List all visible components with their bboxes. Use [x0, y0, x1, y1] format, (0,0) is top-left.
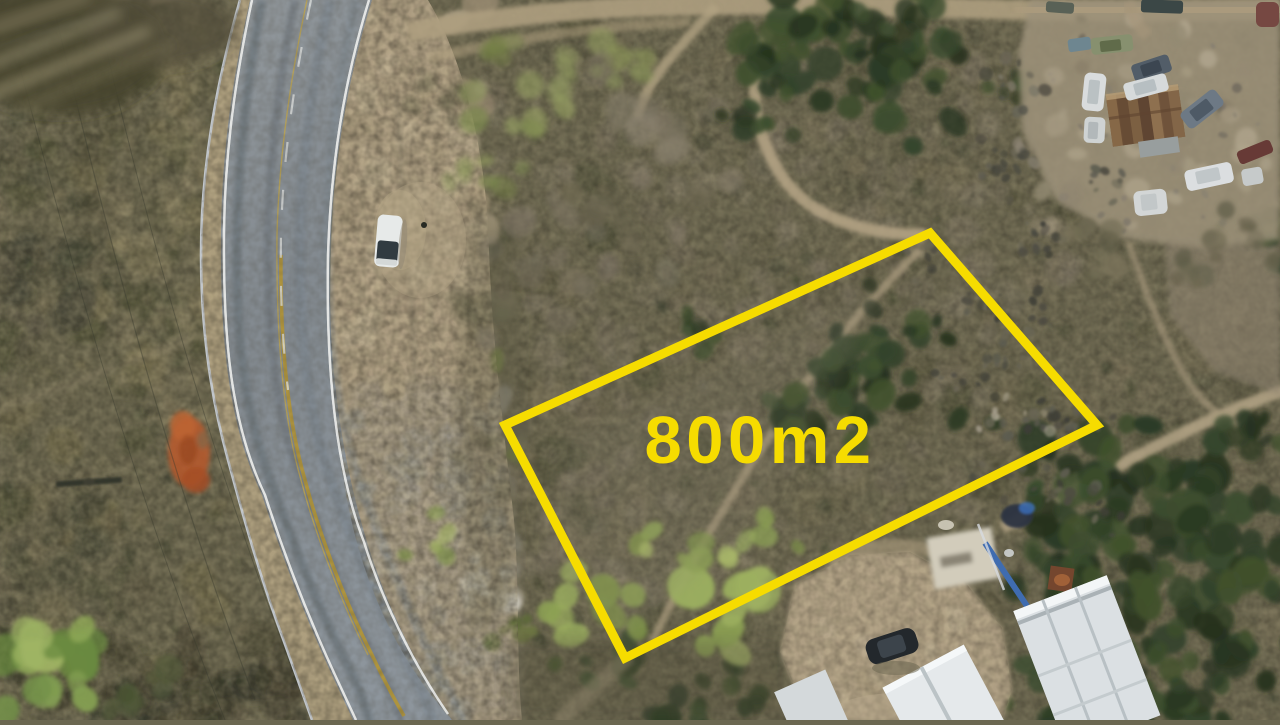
svg-text:800m2: 800m2	[644, 403, 875, 478]
